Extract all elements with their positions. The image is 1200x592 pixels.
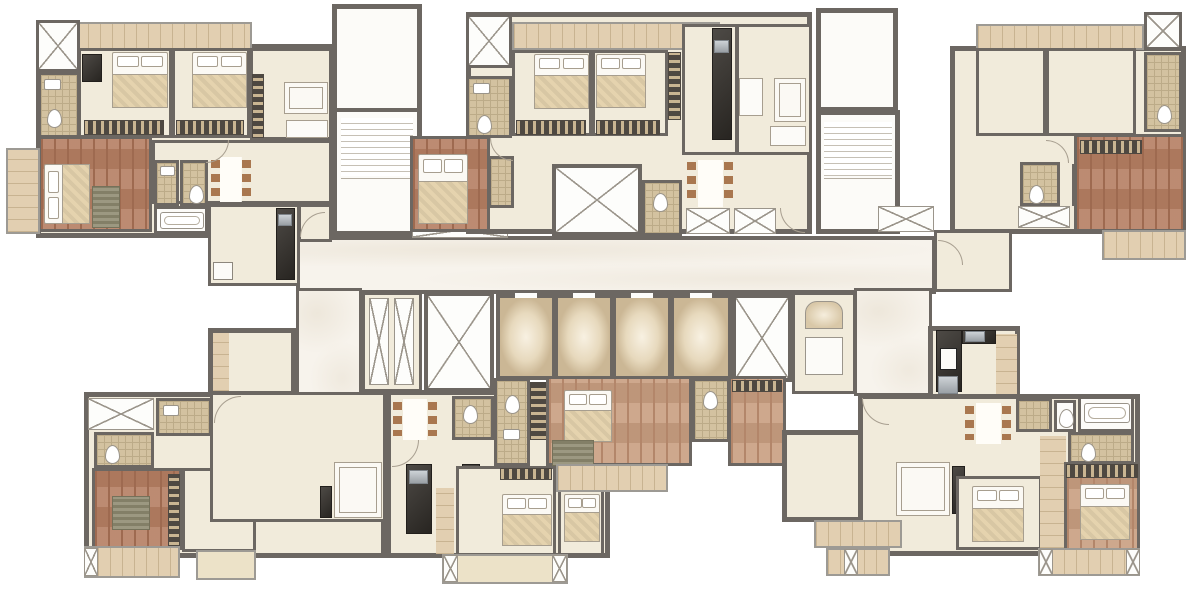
pillow	[117, 56, 138, 67]
br-bathroom-1	[1016, 398, 1052, 432]
pressurization-duct-1	[369, 298, 389, 385]
tm-closet-2	[734, 208, 776, 234]
tl-tv-unit	[252, 74, 264, 138]
br-balcony-1	[814, 520, 902, 548]
toilet-icon	[505, 395, 520, 414]
kitchen-sink	[714, 40, 729, 53]
bl-bathroom-1	[94, 432, 154, 468]
tr-bedroom-1	[976, 48, 1046, 136]
tl-bathroom-3	[180, 160, 208, 206]
toilet-icon	[1029, 185, 1044, 204]
tr-bathroom-1	[1144, 52, 1182, 132]
tr-bathroom-2	[1020, 162, 1060, 206]
tl-bathtub-room	[154, 206, 208, 234]
service-room	[792, 292, 856, 394]
tl-deck	[74, 22, 252, 50]
bc-wardrobe	[500, 468, 552, 480]
tl-bathroom-1	[38, 72, 80, 138]
toilet-icon	[1081, 443, 1096, 462]
tr-balcony	[1102, 230, 1186, 260]
cs-bathroom-left	[494, 378, 530, 466]
tm-duct	[466, 14, 512, 68]
toilet-icon	[463, 405, 478, 424]
stair-flight	[824, 122, 892, 176]
double-bed	[192, 52, 247, 108]
toilet-icon	[105, 445, 120, 464]
toilet-icon	[47, 109, 62, 128]
double-bed	[596, 54, 646, 108]
tm-wardrobe-2	[596, 120, 660, 135]
tr-closet-row	[1018, 206, 1070, 228]
railing-post	[1039, 549, 1053, 575]
sofa	[896, 462, 950, 516]
br-wc-room	[1054, 400, 1076, 432]
bl-closet	[88, 398, 154, 430]
bl-balcony-1	[84, 546, 180, 578]
tl-duct	[36, 20, 80, 72]
washbasin	[44, 79, 61, 90]
tm-closet-1	[686, 208, 730, 234]
service-shaft-right	[732, 294, 792, 382]
bl-bathroom-2	[156, 398, 212, 436]
pillow	[141, 56, 162, 67]
railing-post	[84, 548, 98, 576]
br-wardrobe	[1066, 464, 1138, 478]
tm-wardrobe-1	[516, 120, 586, 135]
double-bed	[534, 54, 589, 109]
railing-post	[1126, 549, 1140, 575]
bc-passage-deck	[436, 488, 454, 554]
pressurization-duct-2	[394, 298, 414, 385]
master-bed	[564, 390, 612, 442]
kitchen-island	[739, 78, 763, 116]
stair-flight	[341, 118, 413, 176]
tm-bathroom-3	[642, 180, 682, 236]
bl-wardrobe	[168, 474, 180, 546]
rug	[552, 440, 594, 466]
cs-terrace-deck	[556, 464, 668, 492]
railing-post	[552, 555, 567, 582]
service-shaft-main	[424, 292, 494, 392]
br-bathtub-room	[1078, 396, 1134, 432]
tm-tv-unit	[668, 52, 681, 120]
bl-balcony-2	[196, 550, 256, 580]
tl-wardrobe-2	[176, 120, 244, 135]
corridor-limb-left	[296, 288, 362, 406]
br-dress-passage	[1040, 436, 1066, 548]
refuge-room	[816, 8, 898, 112]
toilet-icon	[189, 185, 204, 204]
toilet-icon	[703, 391, 718, 410]
br-pantry-deck	[996, 334, 1017, 396]
br-balcony-3	[1038, 548, 1140, 576]
sofa	[334, 462, 382, 518]
bc-bathroom-1	[452, 396, 494, 440]
double-bed	[112, 52, 168, 108]
floor-plan-canvas	[0, 0, 1200, 592]
toilet-icon	[1157, 105, 1172, 124]
machine-box	[805, 337, 843, 375]
br-bathroom-2	[1068, 432, 1134, 464]
double-bed	[502, 494, 552, 546]
study-table	[770, 126, 806, 146]
dining-table	[210, 156, 252, 204]
tl-balcony	[6, 148, 40, 234]
sofa	[774, 78, 806, 122]
toilet-icon	[477, 115, 492, 134]
bathtub-icon	[160, 212, 204, 229]
double-bed	[972, 486, 1024, 542]
railing-post	[443, 555, 458, 582]
cs-wardrobe-2	[732, 380, 782, 392]
dining-table	[964, 402, 1012, 446]
elevator-3	[612, 294, 672, 380]
elevator-1	[496, 294, 556, 380]
blanket	[112, 74, 168, 108]
elevator-4	[670, 294, 732, 380]
tm-bathroom-1	[466, 76, 512, 138]
tr-wardrobe	[1080, 140, 1142, 154]
entry-closet-row	[878, 206, 934, 232]
tl-wardrobe-1	[84, 120, 164, 135]
hob	[940, 348, 957, 370]
cs-bathroom-right	[692, 378, 730, 442]
dining-table	[392, 398, 438, 442]
single-bed	[564, 494, 600, 542]
tl-bathroom-2	[154, 160, 179, 206]
bathtub-icon	[1084, 403, 1130, 423]
elevator-2	[554, 294, 614, 380]
stair-wall	[334, 108, 420, 112]
master-bed	[1080, 484, 1130, 540]
bc-balcony	[442, 554, 568, 584]
corridor-limb-right	[854, 288, 932, 396]
toilet-icon	[1059, 409, 1074, 428]
tm-bathroom-2	[488, 156, 514, 208]
service-lift-cab	[805, 301, 843, 329]
tr-duct	[1144, 12, 1182, 50]
tr-bedroom-2	[1046, 48, 1136, 136]
dining-table	[686, 158, 734, 208]
master-bed	[418, 154, 468, 224]
kitchen-sink	[278, 214, 292, 226]
tm-void-shaft	[552, 164, 642, 236]
master-bed	[44, 164, 90, 224]
tl-dresser	[82, 54, 102, 82]
study-table	[286, 120, 328, 138]
rug	[112, 496, 150, 530]
kitchen-sink	[965, 331, 985, 342]
corridor-main	[296, 236, 936, 294]
stair-landing	[341, 178, 413, 230]
railing-post	[844, 549, 858, 575]
toilet-icon	[653, 193, 668, 212]
washing-machine	[213, 262, 233, 280]
rug	[92, 186, 120, 228]
fridge	[938, 376, 958, 394]
kitchen-sink	[409, 470, 428, 484]
bl-arm-deck	[213, 333, 229, 391]
tv-console	[320, 486, 332, 518]
sofa	[284, 82, 328, 114]
br-balcony-2	[826, 548, 890, 576]
tr-deck	[976, 24, 1144, 50]
